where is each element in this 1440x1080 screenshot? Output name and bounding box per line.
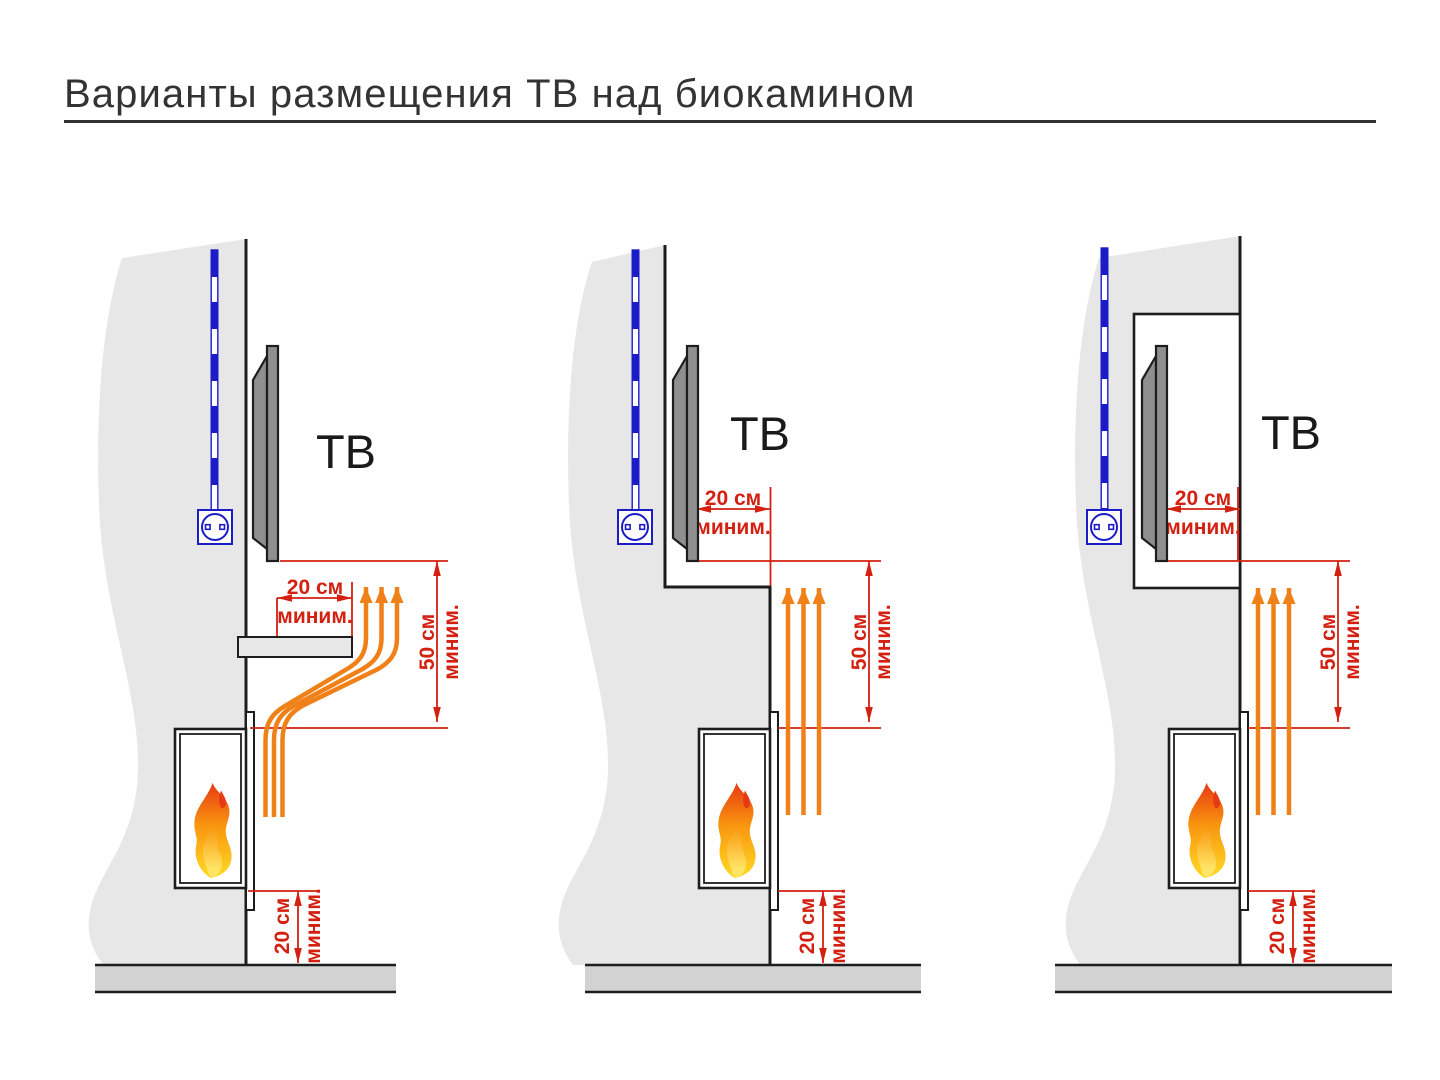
dimension-qualifier: миним.: [1297, 888, 1320, 963]
power-outlet-icon: [198, 510, 232, 544]
tv-label: ТВ: [1261, 406, 1321, 459]
dimension-value: 20 см: [271, 898, 294, 954]
floor-slab: [585, 964, 921, 993]
dim-floor-clearance: 20 см миним.: [778, 888, 850, 963]
tv-side-view: [673, 346, 698, 561]
dimension-value: 20 см: [705, 487, 761, 510]
dimension-qualifier: миним.: [1341, 604, 1364, 679]
diagram-variant-1: 20 см миним. 50 см миним. 20 см миним.: [89, 239, 463, 993]
heat-flow-arrows: [788, 588, 819, 815]
dimension-value: 20 см: [796, 898, 819, 954]
dimension-qualifier: миним.: [277, 605, 352, 628]
tv-side-view: [253, 346, 278, 561]
dimension-qualifier: миним.: [440, 604, 463, 679]
dimension-value: 20 см: [287, 576, 343, 599]
diagram-canvas: 20 см миним. 50 см миним. 20 см миним.: [0, 0, 1440, 1080]
dim-floor-clearance: 20 см миним.: [248, 888, 325, 963]
dimension-value: 20 см: [1175, 487, 1231, 510]
heat-flow-arrows: [1258, 588, 1289, 815]
dimension-qualifier: миним.: [872, 604, 895, 679]
diagram-variant-3: 20 см миним. 50 см миним. 20 см миним.: [1055, 236, 1392, 993]
dimension-value: 50 см: [1317, 614, 1340, 670]
protective-shelf: [238, 637, 352, 657]
infographic-page: Варианты размещения ТВ над биокамином: [0, 0, 1440, 1080]
dim-top-clearance: 20 см миним.: [277, 576, 353, 636]
dimension-qualifier: миним.: [302, 888, 325, 963]
tv-side-view: [1142, 346, 1167, 561]
floor-slab: [95, 964, 396, 993]
dimension-qualifier: миним.: [1165, 516, 1240, 539]
power-outlet-icon: [1087, 510, 1121, 544]
tv-label: ТВ: [730, 407, 790, 460]
dim-top-clearance: 20 см миним.: [695, 487, 770, 586]
dimension-value: 50 см: [848, 614, 871, 670]
dimension-value: 50 см: [416, 614, 439, 670]
power-outlet-icon: [618, 510, 652, 544]
power-cable: [211, 250, 218, 510]
power-cable: [1101, 248, 1108, 512]
dimension-value: 20 см: [1266, 898, 1289, 954]
tv-label: ТВ: [316, 425, 376, 478]
dimension-qualifier: миним.: [827, 888, 850, 963]
power-cable: [632, 250, 639, 512]
diagram-variant-2: 20 см миним. 50 см миним. 20 см миним.: [559, 245, 921, 993]
floor-slab: [1055, 964, 1392, 993]
dimension-qualifier: миним.: [695, 516, 770, 539]
dim-floor-clearance: 20 см миним.: [1248, 888, 1320, 963]
